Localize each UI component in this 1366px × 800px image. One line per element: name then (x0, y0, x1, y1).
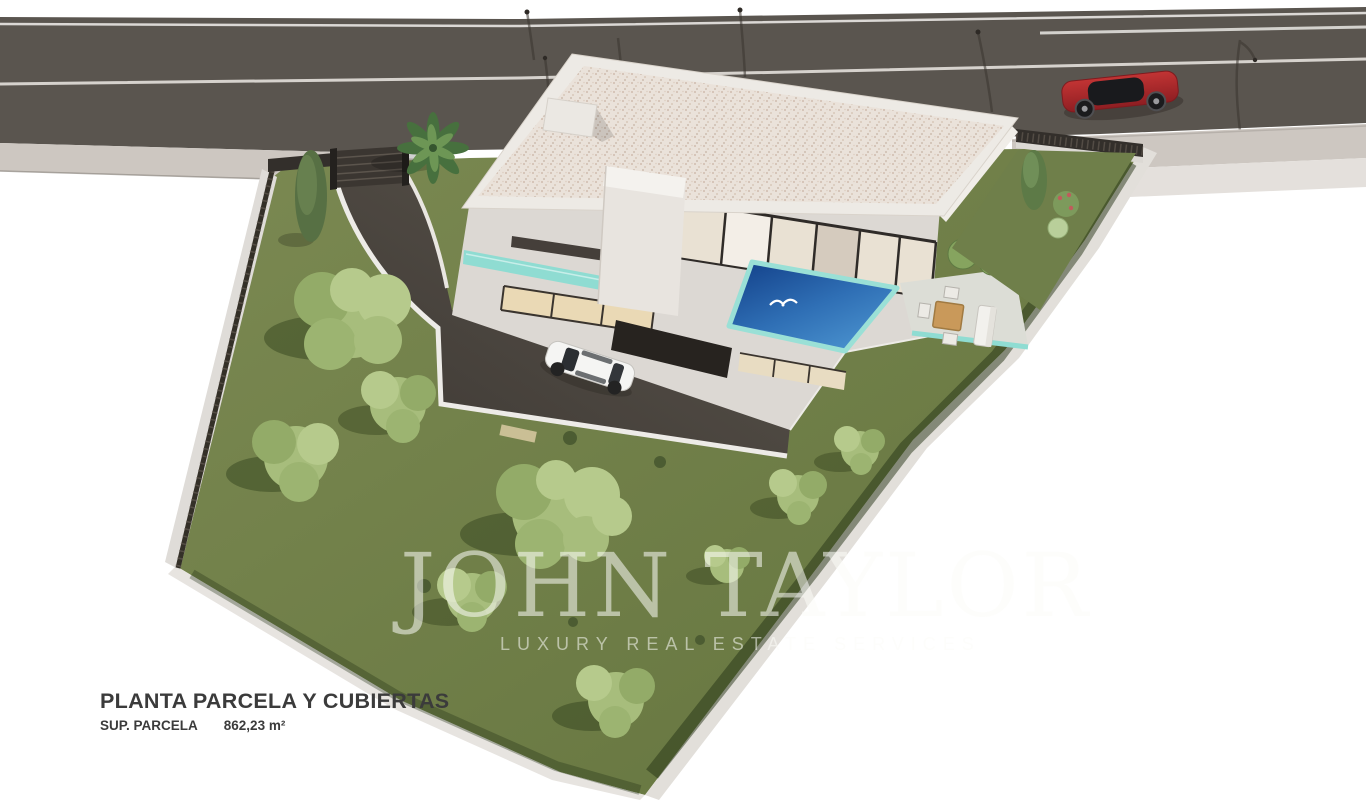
chair (918, 303, 931, 318)
scene-canvas: JOHN TAYLOR LUXURY REAL ESTATE SERVICES (0, 0, 1366, 800)
plan-title: PLANTA PARCELA Y CUBIERTAS (100, 689, 449, 714)
roof-access-box (543, 98, 597, 137)
watermark-tagline: LUXURY REAL ESTATE SERVICES (500, 634, 981, 654)
chair (942, 333, 957, 346)
side-garden-conifer-light (1023, 152, 1039, 188)
site-plan-render: JOHN TAYLOR LUXURY REAL ESTATE SERVICES … (0, 0, 1366, 800)
title-block: PLANTA PARCELA Y CUBIERTAS SUP. PARCELA … (100, 689, 449, 733)
gate-post-left (330, 148, 337, 190)
chair (944, 286, 959, 299)
plot-area-row: SUP. PARCELA 862,23 m² (100, 718, 449, 733)
cypress-highlight (297, 155, 317, 215)
watermark-brand: JOHN TAYLOR (392, 534, 1091, 637)
plot-area-label: SUP. PARCELA (100, 718, 198, 733)
dining-table (933, 301, 964, 331)
plot-area-value: 862,23 m² (224, 718, 286, 733)
